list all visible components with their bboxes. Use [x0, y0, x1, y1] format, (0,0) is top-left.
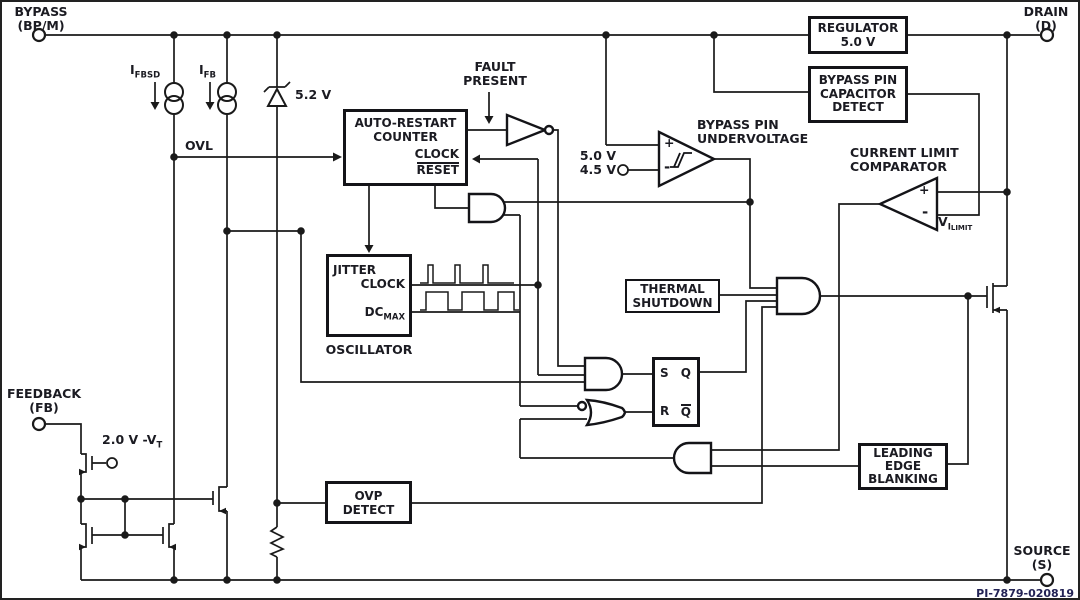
oscillator-caption: OSCILLATOR	[314, 343, 424, 357]
source-terminal-label: SOURCE(S)	[1004, 544, 1080, 572]
ovl-label: OVL	[185, 139, 213, 153]
and-gate-fault	[469, 194, 505, 222]
leading-edge-blanking-block: LEADING EDGE BLANKING	[858, 443, 948, 490]
dcmax-waveform-icon	[420, 292, 519, 310]
feedback-terminal-label: FEEDBACK(FB)	[2, 387, 86, 415]
and-gate-blanking	[674, 443, 711, 473]
uv-threshold-label: 5.0 V4.5 V	[568, 149, 616, 177]
diagram-code: PI-7879-020819	[932, 587, 1074, 600]
sr-latch-block: S Q R Q	[652, 357, 700, 427]
vt-reference-bubble	[107, 458, 117, 468]
functional-block-diagram: REGULATOR 5.0 V BYPASS PIN CAPACITOR DET…	[0, 0, 1080, 600]
regulator-label-1: REGULATOR	[818, 21, 899, 35]
thermal-shutdown-block: THERMAL SHUTDOWN	[625, 279, 720, 313]
ifbsd-label: IFBSD	[130, 63, 160, 83]
bypass-capacitor-detect-block: BYPASS PIN CAPACITOR DETECT	[808, 66, 908, 123]
inverter-bubble	[545, 126, 553, 134]
current-source-ifb	[218, 83, 236, 114]
ovp-detect-block: OVP DETECT	[325, 481, 412, 524]
drain-terminal-label: DRAIN(D)	[1014, 5, 1078, 33]
oscillator-block: JITTER CLOCK DCMAX	[326, 254, 412, 337]
ifb-label: IFB	[199, 63, 216, 83]
and-gate-set	[585, 358, 622, 390]
zener-voltage-label: 5.2 V	[295, 88, 331, 102]
regulator-label-2: 5.0 V	[841, 35, 876, 49]
source-pin-terminal	[1041, 574, 1053, 586]
fault-present-label: FAULTPRESENT	[445, 60, 545, 88]
bypass-undervoltage-label: BYPASS PINUNDERVOLTAGE	[697, 118, 808, 146]
auto-restart-counter-block: AUTO-RESTART COUNTER CLOCK RESET	[343, 109, 468, 186]
vilimit-label: VILIMIT	[938, 215, 972, 235]
uv-plus-sign: +	[664, 136, 674, 150]
feedback-pin-terminal	[33, 418, 45, 430]
bypass-terminal-label: BYPASS(BP/M)	[4, 5, 78, 33]
or-gate-reset	[587, 400, 625, 425]
latch-q-label: Q	[681, 366, 691, 380]
latch-s-label: S	[660, 366, 669, 380]
latch-qbar-label: Q	[681, 404, 691, 418]
cl-plus-sign: +	[919, 183, 929, 197]
current-limit-comparator-label: CURRENT LIMITCOMPARATOR	[850, 146, 959, 174]
schematic-wiring	[2, 2, 1080, 600]
reset-label: RESET	[417, 162, 459, 176]
and-gate-output	[777, 278, 820, 314]
latch-r-label: R	[660, 404, 669, 418]
or-input-bubble	[578, 402, 586, 410]
regulator-block: REGULATOR 5.0 V	[808, 16, 908, 54]
current-source-ifbsd	[165, 83, 183, 114]
clock-waveform-icon	[420, 265, 514, 283]
dcmax-label: DCMAX	[329, 305, 405, 324]
cl-minus-sign: -	[922, 205, 928, 219]
vt-reference-label: 2.0 V -VT	[102, 433, 162, 453]
uv-minus-sign: -	[664, 160, 670, 174]
inverter	[507, 115, 545, 145]
uv-reference-bubble	[618, 165, 628, 175]
